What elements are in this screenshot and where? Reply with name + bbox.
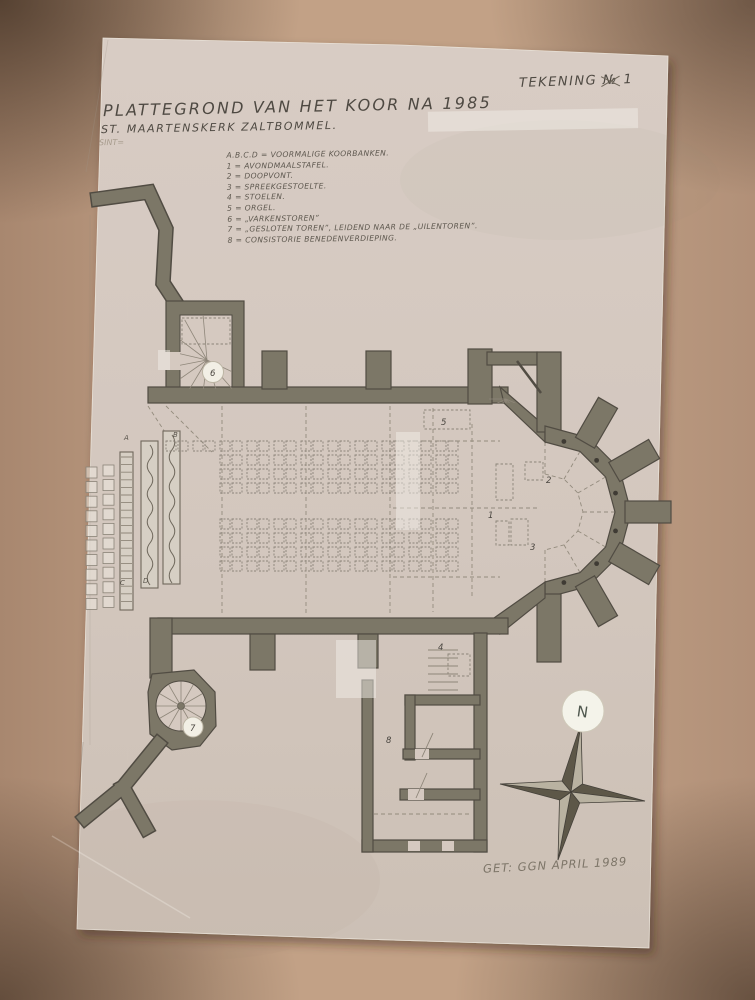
drawing-number-value: 1 [623, 72, 633, 87]
apse-window-mark [561, 580, 566, 585]
apse-window-mark [594, 561, 599, 566]
bench-letter: C [120, 579, 125, 587]
bench-chair [103, 480, 114, 491]
bench-chair [103, 553, 114, 564]
bench-chair [86, 511, 97, 522]
faint-note: SINT= [99, 138, 124, 147]
southwest-wall-band [150, 618, 172, 678]
consistory-inner-wall [403, 749, 480, 759]
font-label: 2 [546, 476, 551, 486]
consistory-inner-wall [405, 695, 480, 705]
tower-6-label: 6 [210, 369, 216, 379]
bench-chair [86, 569, 97, 580]
consistory-left-wall [362, 680, 373, 852]
window-gap [408, 841, 420, 851]
bench-chair [86, 540, 97, 551]
bench-letter: D [143, 577, 149, 585]
nr-symbol: № [603, 73, 619, 89]
bench-chair [86, 555, 97, 566]
consistory-right-wall [474, 633, 487, 852]
apse-buttress-bottom [537, 594, 561, 662]
photo-background: 6 7 5 1 2 3 4 8 A B C D N TEKENING № 1 P… [0, 0, 755, 1000]
apse-window-mark [561, 439, 566, 444]
apse-buttress [625, 501, 671, 523]
south-buttress [250, 634, 275, 670]
bench-chair [86, 467, 97, 478]
bench-chair [103, 465, 114, 476]
north-buttress [262, 351, 287, 389]
consistory-label: 8 [386, 736, 392, 746]
door-gap [408, 789, 424, 800]
pulpit-label: 3 [530, 543, 535, 553]
bench-letter: B [173, 431, 178, 439]
bench-chair [86, 525, 97, 536]
north-wall [148, 387, 508, 403]
legend: A.B.C.D = VOORMALIGE KOORBANKEN.1 = AVON… [226, 147, 478, 246]
bench-chair [103, 567, 114, 578]
door-gap [415, 749, 429, 759]
organ-label: 5 [441, 418, 446, 428]
window-gap [442, 841, 454, 851]
bench-chair [103, 596, 114, 607]
bench-chair [103, 582, 114, 593]
bench-chair [86, 598, 97, 609]
table-label: 1 [488, 511, 493, 521]
north-buttress [366, 351, 391, 389]
consistory-bottom-wall [362, 840, 487, 852]
carved-bench-a [141, 441, 158, 588]
bench-chair [103, 494, 114, 505]
bench-chair [86, 496, 97, 507]
bench-chair [86, 584, 97, 595]
bench-chair [103, 523, 114, 534]
drawing-number-prefix: TEKENING [519, 73, 598, 91]
bench-letter: A [123, 434, 129, 442]
carved-bench-b [163, 431, 180, 584]
choir-benches-group [120, 431, 180, 610]
tower-7-label: 7 [190, 724, 196, 734]
bench-chair [103, 538, 114, 549]
apse-window-mark [594, 458, 599, 463]
south-wall [158, 618, 508, 634]
apse-window-mark [613, 491, 618, 496]
apse-window-mark [613, 528, 618, 533]
north-chapel-wall [487, 352, 537, 365]
bench-chair [103, 509, 114, 520]
chairs-label: 4 [438, 643, 443, 653]
bench-chair [86, 482, 97, 493]
